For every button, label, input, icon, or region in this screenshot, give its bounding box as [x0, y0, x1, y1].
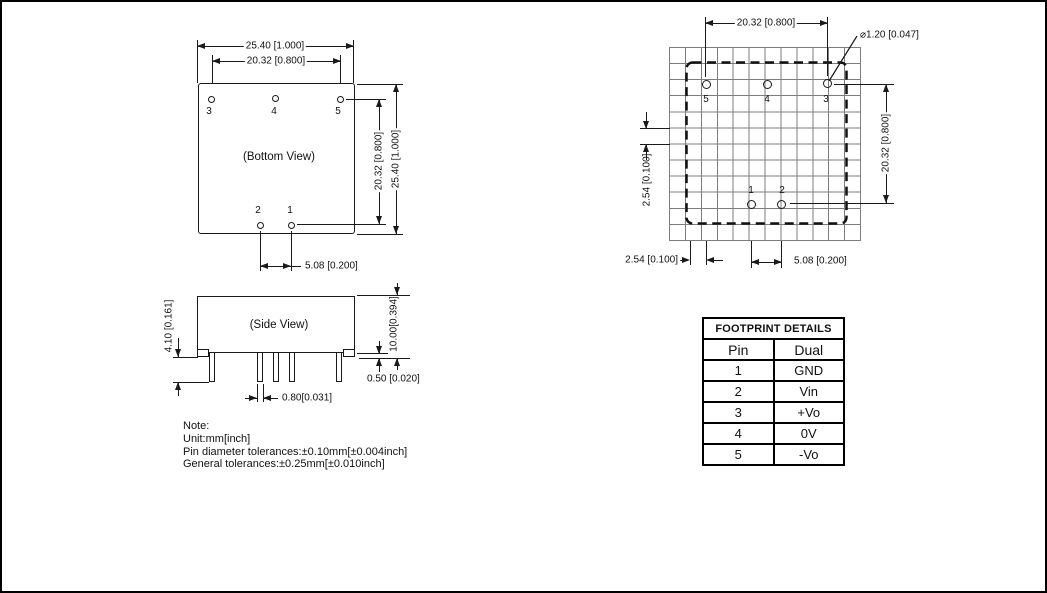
arrow	[376, 216, 382, 224]
arrow	[283, 263, 291, 269]
arrow	[393, 226, 399, 234]
ext-line	[790, 203, 894, 204]
ext-line	[257, 384, 258, 402]
arrow	[883, 195, 889, 203]
pin-number: 4	[764, 95, 770, 105]
side-view-pin	[273, 352, 279, 382]
ext-line	[359, 358, 410, 359]
ext-line	[357, 234, 403, 235]
arrow	[249, 395, 257, 401]
note-general-tolerance: General tolerances:±0.25mm[±0.010inch]	[183, 458, 407, 471]
arrow	[212, 58, 220, 64]
table-row: 1 GND	[703, 360, 844, 381]
hole-4	[763, 80, 772, 89]
arrow	[643, 144, 649, 152]
ext-line	[705, 17, 706, 77]
pin-hole-1	[288, 222, 295, 229]
pin-number: 5	[335, 107, 341, 117]
signal-cell: +Vo	[774, 402, 845, 423]
side-view-pin	[209, 352, 215, 382]
ext-line	[173, 357, 198, 358]
pin-number: 1	[748, 186, 754, 196]
arrow	[333, 58, 341, 64]
arrow	[706, 257, 714, 263]
side-view-foot-right	[343, 349, 355, 357]
note-pin-tolerance: Pin diameter tolerances:±0.10mm[±0.004in…	[183, 446, 407, 459]
dim-bottom-width-outer: 25.40 [1.000]	[244, 41, 306, 52]
signal-cell: -Vo	[774, 444, 845, 465]
arrow	[394, 358, 400, 366]
side-view-pin	[289, 352, 295, 382]
column-header-pin: Pin	[703, 339, 774, 360]
dim-bottom-width-pins: 20.32 [0.800]	[245, 56, 307, 67]
dim-side-pin-length: 4.10 [0.161]	[164, 300, 175, 353]
pin-number: 4	[271, 107, 277, 117]
signal-cell: 0V	[774, 423, 845, 444]
pin-number: 2	[779, 186, 785, 196]
ext-line	[357, 353, 388, 354]
drawing-canvas: 25.40 [1.000] 20.32 [0.800] 3 4 5 2 1 (B…	[0, 0, 1047, 593]
hole-5	[702, 80, 711, 89]
pin-hole-5	[337, 96, 344, 103]
signal-cell: Vin	[774, 381, 845, 402]
pin-hole-2	[257, 222, 264, 229]
side-view-pin	[257, 352, 263, 382]
dim-bottom-height-pins: 20.32 [0.800]	[374, 130, 385, 192]
pin-cell: 2	[703, 381, 774, 402]
arrow	[682, 257, 690, 263]
arrow	[175, 382, 181, 390]
arrow	[175, 349, 181, 357]
pin-number: 5	[703, 95, 709, 105]
ext-line	[690, 241, 691, 265]
arrow	[376, 99, 382, 107]
pin-cell: 5	[703, 444, 774, 465]
pin-cell: 4	[703, 423, 774, 444]
notes-block: Note: Unit:mm[inch] Pin diameter toleran…	[183, 420, 407, 471]
hole-1	[747, 200, 756, 209]
arrow	[346, 43, 354, 49]
dim-line	[713, 260, 723, 261]
arrow	[394, 287, 400, 295]
footprint-details-table: FOOTPRINT DETAILS Pin Dual 1 GND 2 Vin 3…	[702, 317, 845, 466]
arrow	[820, 20, 828, 26]
arrow	[705, 20, 713, 26]
arrow	[883, 84, 889, 92]
dim-footprint-grid-pitch-h: 2.54 [0.100]	[623, 255, 680, 266]
bottom-view-label: (Bottom View)	[224, 151, 334, 163]
arrow	[263, 395, 271, 401]
dim-bottom-height-outer: 25.40 [1.000]	[391, 128, 402, 190]
note-title: Note:	[183, 420, 407, 433]
side-view-pin	[336, 352, 342, 382]
pin-hole-4	[272, 95, 279, 102]
table-title: FOOTPRINT DETAILS	[703, 318, 844, 339]
dim-bottom-pin-pitch: 5.08 [0.200]	[303, 261, 360, 272]
ext-line	[291, 231, 292, 271]
dim-side-pin-width: 0.80[0.031]	[280, 393, 334, 404]
dim-footprint-pin-pitch: 5.08 [0.200]	[792, 256, 849, 267]
column-header-dual: Dual	[774, 339, 845, 360]
arrow	[774, 259, 782, 265]
pin-number: 1	[287, 206, 293, 216]
signal-cell: GND	[774, 360, 845, 381]
pin-number: 2	[255, 206, 261, 216]
pin-number: 3	[823, 95, 829, 105]
dim-footprint-width-pins: 20.32 [0.800]	[735, 18, 797, 29]
arrow	[751, 259, 759, 265]
arrow	[643, 121, 649, 129]
pin-number: 3	[206, 107, 212, 117]
dim-side-body-height: 10.00[0.394]	[389, 296, 400, 352]
pin-hole-3	[208, 96, 215, 103]
table-row: 4 0V	[703, 423, 844, 444]
pin-cell: 3	[703, 402, 774, 423]
side-view-foot-left	[197, 349, 209, 357]
dim-footprint-grid-pitch-v: 2.54 [0.100]	[642, 154, 653, 207]
pin-cell: 1	[703, 360, 774, 381]
table-row: 2 Vin	[703, 381, 844, 402]
arrow	[197, 43, 205, 49]
dim-side-standoff: 0.50 [0.020]	[365, 374, 422, 385]
arrow	[376, 346, 382, 354]
hole-2	[777, 200, 786, 209]
ext-line	[297, 224, 386, 225]
table-row: 3 +Vo	[703, 402, 844, 423]
arrow	[393, 84, 399, 92]
table-row: 5 -Vo	[703, 444, 844, 465]
side-view-label: (Side View)	[224, 319, 334, 331]
note-unit: Unit:mm[inch]	[183, 433, 407, 446]
ext-line	[357, 295, 410, 296]
arrow	[376, 358, 382, 366]
dim-footprint-height-pins: 20.32 [0.800]	[881, 112, 892, 174]
dim-hole-diameter: ⌀1.20 [0.047]	[858, 30, 921, 41]
arrow	[260, 263, 268, 269]
